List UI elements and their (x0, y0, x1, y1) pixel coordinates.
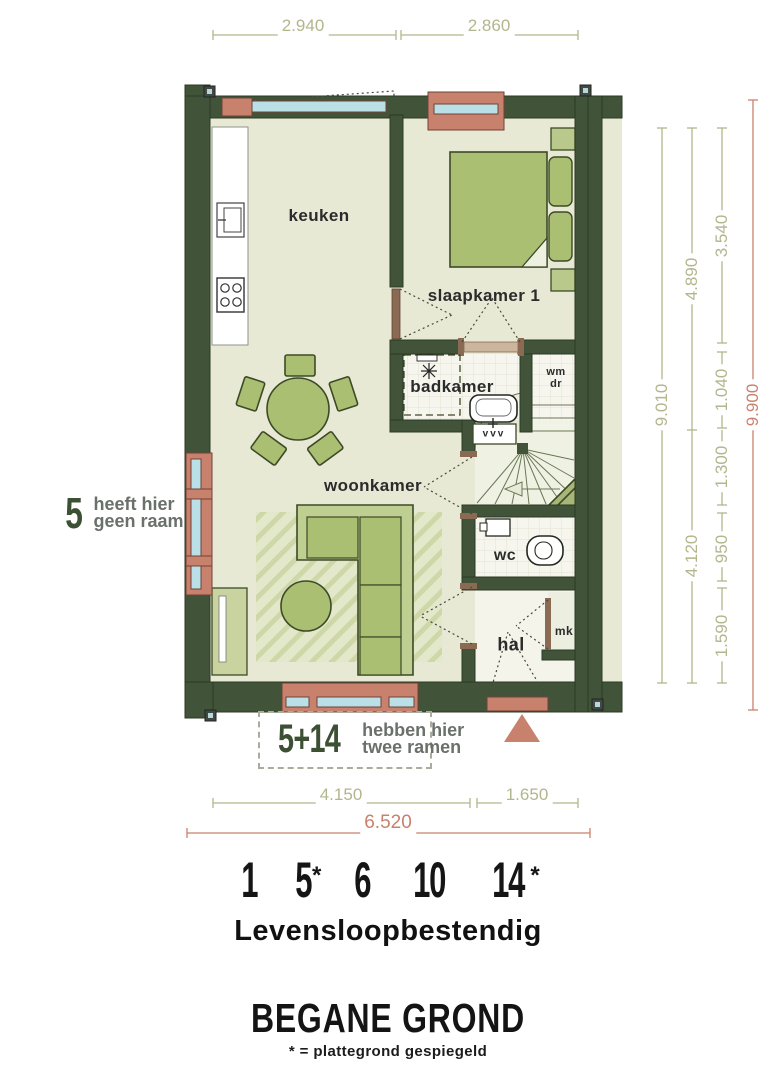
coffee-table (281, 581, 331, 631)
stair-post (517, 443, 528, 454)
dim-chain-5: 1.590 (712, 611, 732, 662)
unit-number: 5* (290, 856, 321, 904)
door-jamb (460, 583, 477, 589)
wall-wc-hall (462, 577, 575, 590)
dim-right-lower: 4.120 (682, 531, 702, 582)
annotation-text: heeft hier geen raam (93, 496, 183, 530)
sofa-cushion (360, 517, 401, 585)
unit-number: 6 (349, 856, 375, 904)
room-label-bathroom: badkamer (410, 377, 494, 397)
wall-bedroom-south-right (518, 340, 575, 354)
neighbor-floor-strip (602, 118, 622, 682)
annotation-unit-number: 5 (65, 496, 82, 532)
label-vvv: vvv (483, 429, 506, 440)
kitchen-window-glass (252, 101, 386, 112)
mk-door-leaf (545, 598, 551, 650)
bedroom-window-glass (434, 104, 498, 114)
label-wm: wm (546, 366, 565, 378)
door-jamb (460, 451, 477, 457)
kitchen-furniture (212, 127, 248, 345)
door-jamb (460, 643, 477, 649)
dim-right-total-inner: 9.010 (652, 380, 672, 431)
toilet-bowl (535, 542, 552, 559)
unit-numbers-row: 1 5* 6 10 14* (236, 856, 539, 904)
annotation-unit-numbers: 5+14 (278, 722, 340, 756)
plan-title: BEGANE GROND (212, 995, 563, 1042)
dim-chain-3: 1.300 (712, 442, 732, 493)
dim-chain-4: 950 (712, 531, 732, 567)
sofa-cushion (360, 585, 401, 637)
vent-icon (580, 85, 591, 96)
unit-number: 10 (403, 856, 455, 904)
dim-bottom-1: 4.150 (316, 785, 367, 805)
pillow (549, 157, 572, 206)
living-window-glass (191, 459, 201, 589)
label-mk: mk (555, 624, 573, 638)
shower-head (417, 355, 437, 361)
kitchen-window-frame (222, 98, 252, 116)
sofa-cushion (360, 637, 401, 675)
wall-bedroom-south-left (390, 340, 460, 354)
nightstand (551, 128, 575, 150)
dim-right-total-outer: 9.900 (743, 380, 763, 431)
annotation-two-windows: 5+14 hebben hier twee ramen (266, 722, 464, 756)
unit-number: 14* (483, 856, 540, 904)
wall-mk-south (542, 650, 575, 660)
dim-top-1: 2.940 (278, 16, 329, 36)
sofa-cushion (307, 517, 358, 558)
room-label-bedroom: slaapkamer 1 (428, 286, 541, 306)
dim-chain-1: 3.540 (712, 211, 732, 262)
room-label-wc: wc (494, 547, 516, 565)
label-dr: dr (550, 378, 562, 390)
annotation-text: hebben hier twee ramen (362, 722, 464, 756)
wc-fontein (486, 519, 510, 536)
dim-right-upper: 4.890 (682, 254, 702, 305)
south-window-glass (286, 697, 309, 707)
pillow (549, 212, 572, 261)
wall-kitchen-bedroom (390, 115, 403, 287)
living-window-mullion (186, 556, 212, 566)
vent-icon (205, 710, 216, 721)
south-window-glass (317, 697, 381, 707)
mk-floor (548, 592, 575, 650)
bed (450, 152, 547, 267)
vent-icon (204, 86, 215, 97)
chair (285, 355, 315, 376)
cabinet (212, 588, 247, 675)
wall-stairs-wc (462, 505, 575, 517)
south-window-glass (389, 697, 414, 707)
room-label-hall: hal (497, 635, 524, 656)
stove (217, 278, 244, 312)
floorplan-page: 2.940 2.860 9.010 4.890 4.120 3.540 1.04… (0, 0, 771, 1080)
wall-left (185, 96, 210, 712)
unit-number: 1 (236, 856, 262, 904)
nightstand (551, 269, 575, 291)
wall-bathroom-east (520, 354, 532, 432)
door-jamb (460, 513, 477, 519)
wall-hall-west-2 (462, 515, 475, 585)
cabinet-slot (219, 596, 226, 662)
front-door-threshold (487, 697, 548, 711)
dim-bottom-2: 1.650 (502, 785, 553, 805)
dim-bottom-total: 6.520 (360, 812, 416, 834)
room-label-living: woonkamer (324, 476, 422, 496)
entrance-marker (504, 714, 540, 742)
room-label-kitchen: keuken (289, 206, 350, 226)
dining-table (267, 378, 329, 440)
dim-top-2: 2.860 (464, 16, 515, 36)
annotation-no-window: 5 heeft hier geen raam (62, 496, 184, 532)
plan-subtitle: Levensloopbestendig (234, 915, 542, 948)
living-window-mullion (186, 489, 212, 499)
vent-icon (592, 699, 603, 710)
mirrored-note: * = plattegrond gespiegeld (289, 1043, 487, 1060)
wc-fontein-faucet (480, 523, 487, 531)
dim-chain-2: 1.040 (712, 365, 732, 416)
bathroom-door-sill (464, 342, 518, 352)
wall-hall-west-3 (462, 645, 475, 682)
bedroom-door-leaf (392, 289, 400, 339)
